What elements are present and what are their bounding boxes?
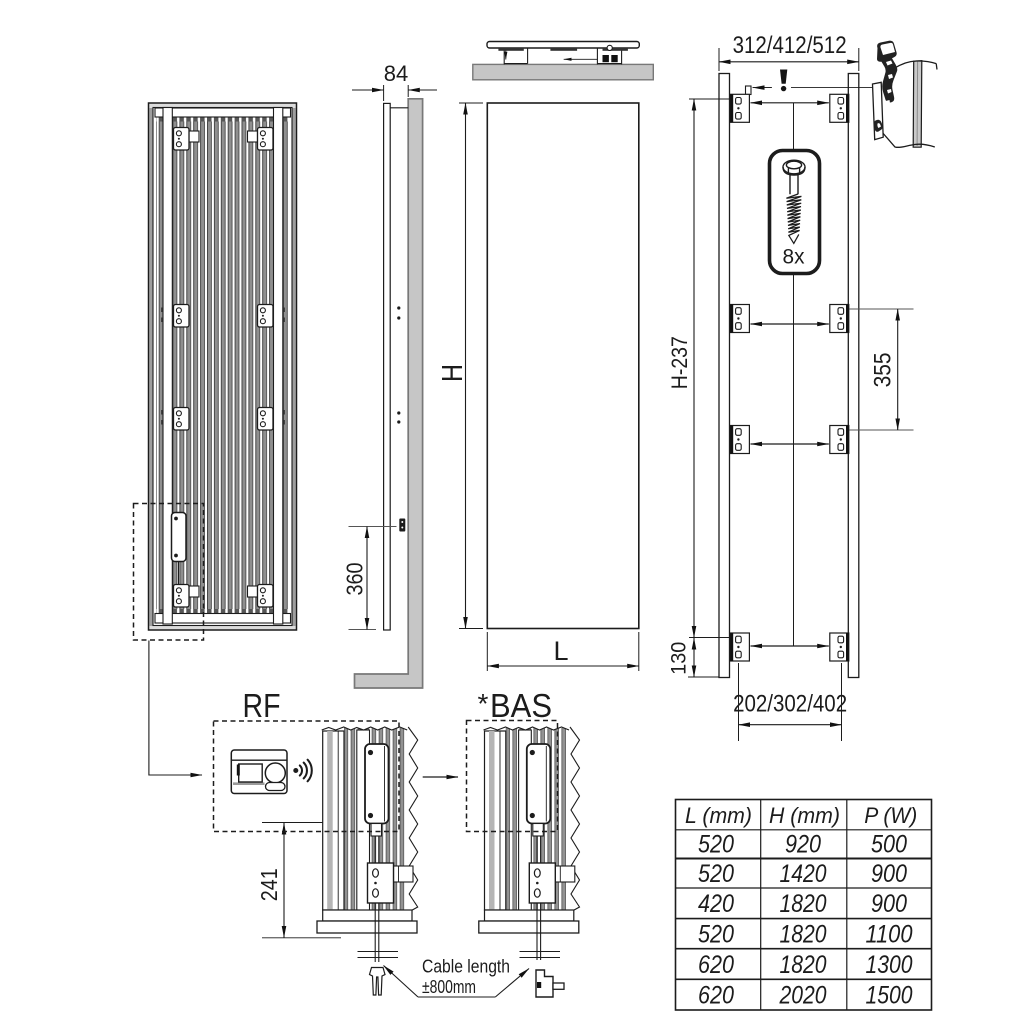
- svg-text:900: 900: [871, 860, 907, 888]
- svg-text:900: 900: [871, 890, 907, 918]
- svg-text:1420: 1420: [780, 860, 827, 888]
- svg-text:H (mm): H (mm): [769, 803, 840, 828]
- svg-text:1820: 1820: [780, 951, 827, 979]
- svg-text:1820: 1820: [780, 890, 827, 918]
- svg-text:1820: 1820: [780, 921, 827, 949]
- svg-text:84: 84: [384, 61, 408, 86]
- svg-text:H: H: [437, 364, 469, 382]
- svg-text:RF: RF: [243, 687, 281, 724]
- svg-text:1500: 1500: [866, 982, 913, 1010]
- svg-text:8x: 8x: [783, 245, 805, 269]
- svg-text:1100: 1100: [866, 921, 913, 949]
- svg-text:130: 130: [668, 642, 691, 675]
- svg-text:L (mm): L (mm): [685, 803, 752, 828]
- svg-text:360: 360: [342, 563, 368, 596]
- svg-text:920: 920: [785, 831, 821, 859]
- svg-text:355: 355: [869, 352, 896, 387]
- svg-text:*: *: [478, 688, 489, 719]
- svg-text:2020: 2020: [779, 982, 827, 1010]
- svg-text:P (W): P (W): [864, 803, 917, 828]
- svg-text:420: 420: [698, 890, 734, 918]
- svg-text:620: 620: [698, 951, 734, 979]
- svg-text:520: 520: [698, 860, 734, 888]
- svg-text:520: 520: [698, 921, 734, 949]
- svg-text:±800mm: ±800mm: [422, 977, 476, 997]
- svg-text:L: L: [553, 636, 568, 666]
- svg-text:Cable length: Cable length: [422, 957, 510, 977]
- svg-text:1300: 1300: [866, 951, 913, 979]
- svg-text:620: 620: [698, 982, 734, 1010]
- svg-text:241: 241: [256, 868, 282, 901]
- svg-text:500: 500: [871, 831, 907, 859]
- svg-text:312/412/512: 312/412/512: [733, 32, 847, 59]
- svg-text:520: 520: [698, 831, 734, 859]
- svg-text:H-237: H-237: [667, 336, 692, 389]
- svg-text:BAS: BAS: [490, 687, 552, 724]
- svg-text:202/302/402: 202/302/402: [733, 691, 847, 718]
